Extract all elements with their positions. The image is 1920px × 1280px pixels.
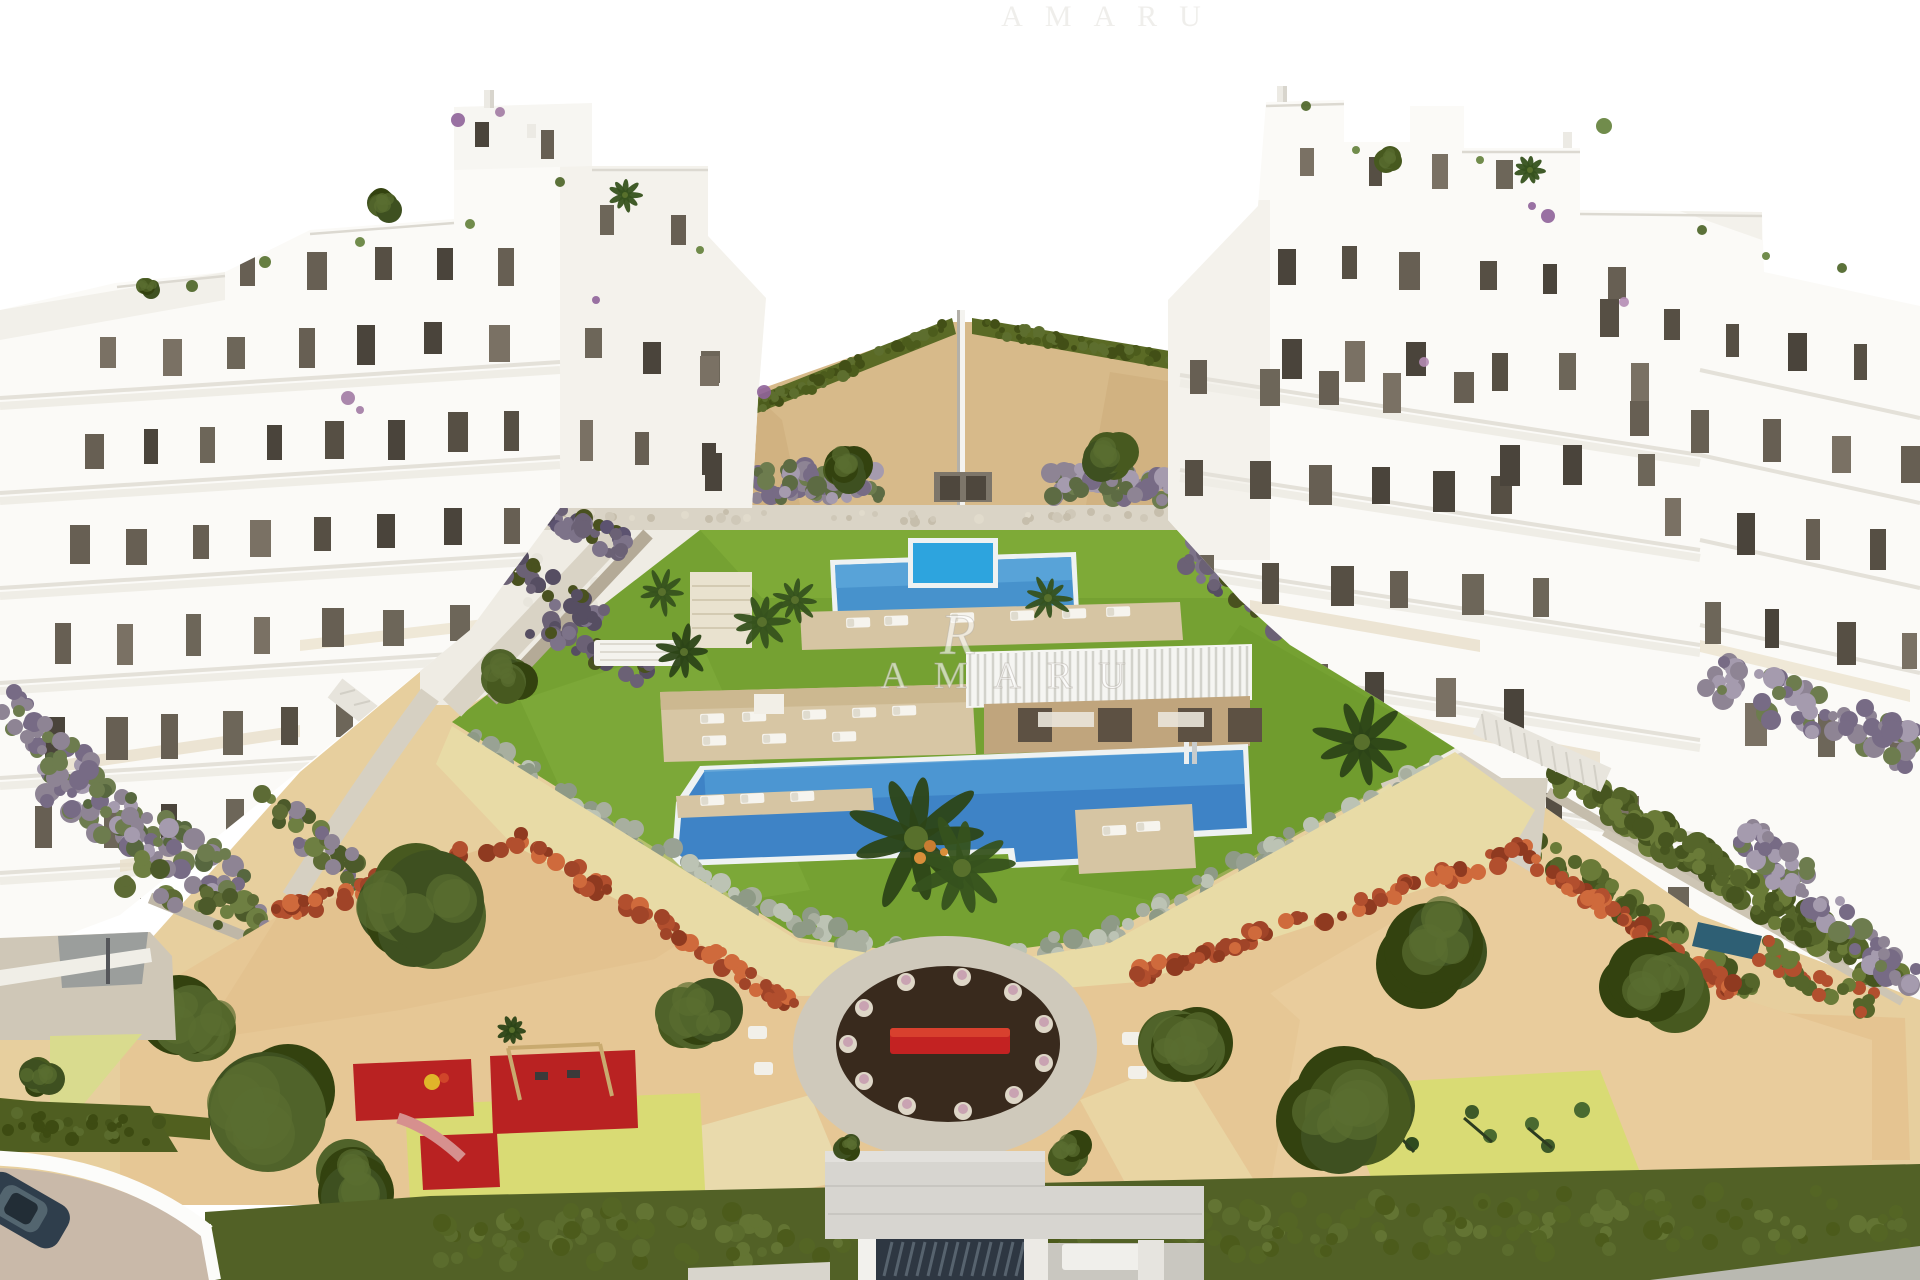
svg-text:AMARU: AMARU — [1001, 0, 1223, 33]
svg-text:AMARU: AMARU — [880, 655, 1151, 697]
